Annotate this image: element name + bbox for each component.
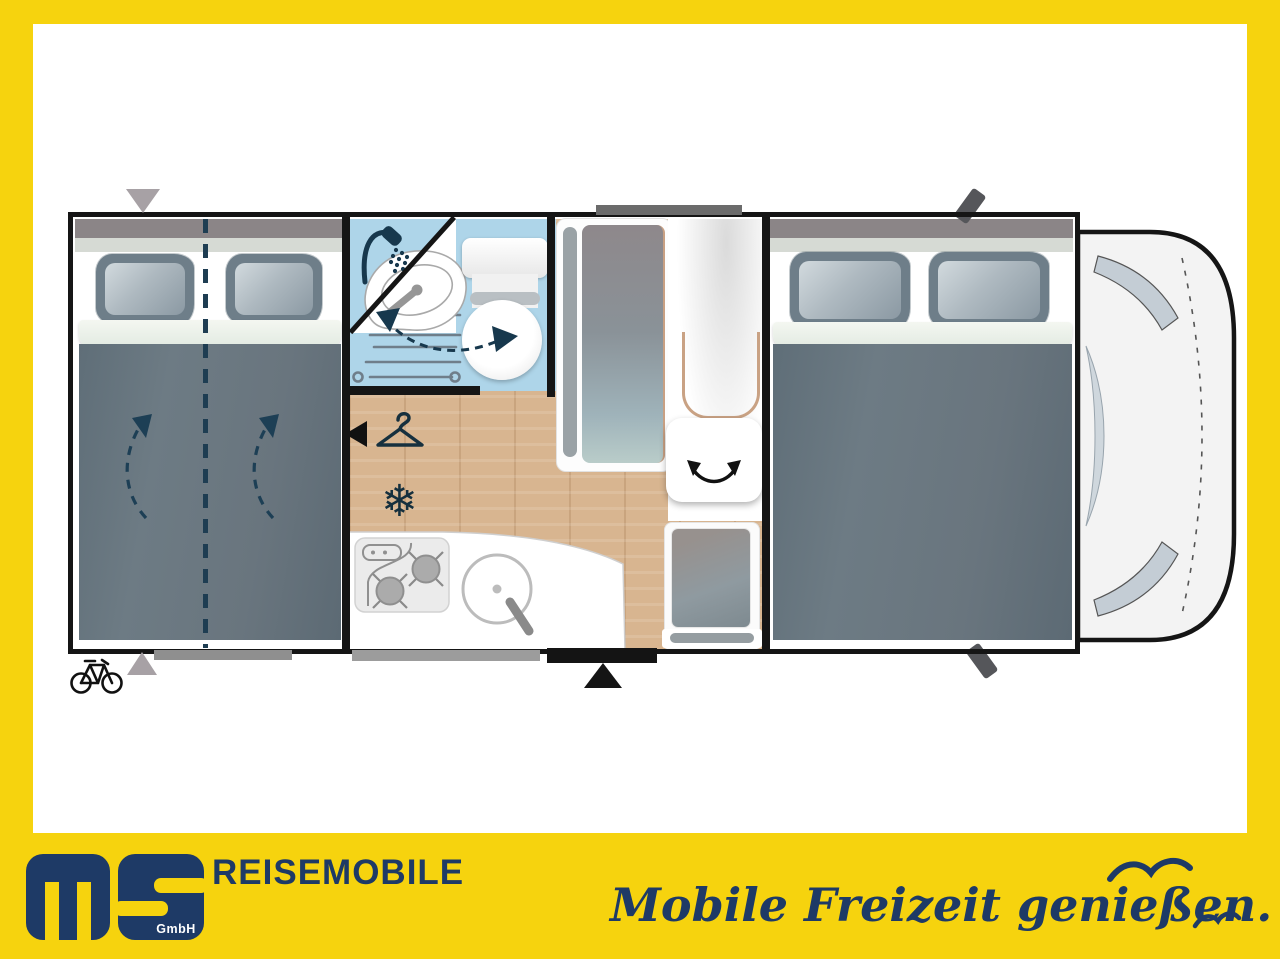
wall-bathroom-right — [547, 217, 555, 397]
logo-gmbh-label: GmbH — [150, 922, 202, 936]
coach-outline — [68, 212, 1080, 654]
entry-step — [670, 633, 754, 643]
entry-door-sill — [547, 648, 657, 663]
seagull-icon-small — [1192, 906, 1242, 934]
wall-bathroom-bottom — [342, 386, 480, 395]
seagull-icon-large — [1106, 851, 1194, 889]
bicycle-icon — [68, 650, 126, 696]
garage-hatch-marker — [154, 650, 292, 660]
wall-front-bed — [762, 217, 770, 649]
wall-rear-bed — [342, 217, 350, 649]
driver-cab — [1076, 186, 1246, 686]
roof-hatch-marker — [596, 205, 742, 215]
kitchen-service-hatch — [352, 650, 540, 661]
marker-triangle-bottom — [127, 652, 157, 675]
page: ❄ — [0, 0, 1280, 959]
brand-title: REISEMOBILE — [212, 853, 464, 893]
marker-triangle-top — [126, 189, 160, 213]
entry-door-marker — [584, 663, 622, 688]
